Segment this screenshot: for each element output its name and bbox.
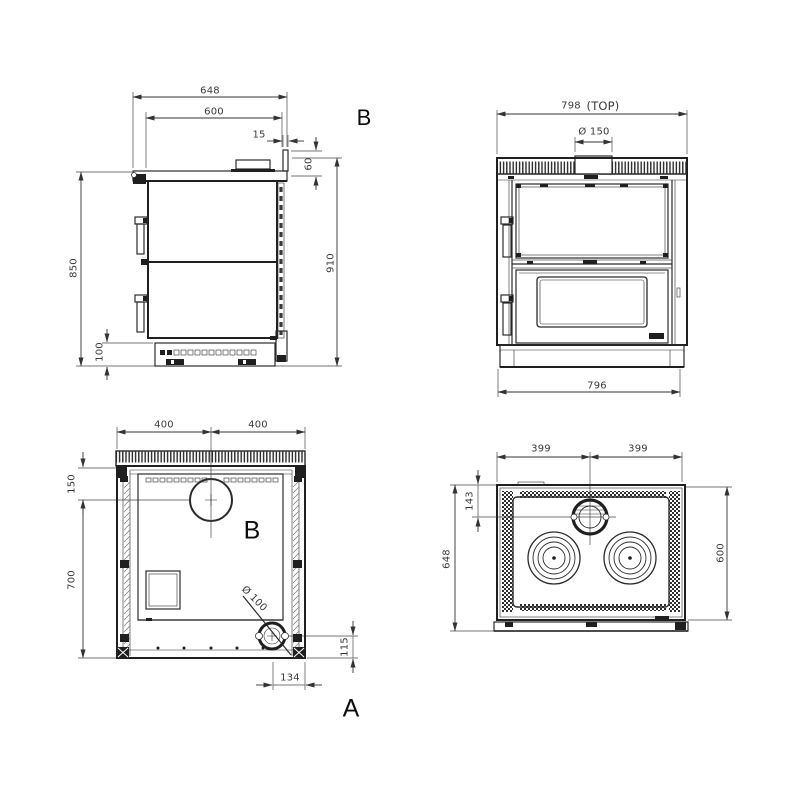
dim-top-overall-depth: 648 [442, 549, 453, 569]
dim-side-upstand-thickness: 15 [252, 130, 265, 141]
dim-front-top-width: 798 [561, 101, 581, 112]
dim-front-base-width: 796 [587, 381, 607, 392]
technical-drawing-canvas: 648 600 15 60 850 910 100 B 798 (TOP) Ø … [0, 0, 800, 800]
view-label-b-rear: B [244, 517, 261, 546]
dim-side-top-depth: 600 [204, 107, 224, 118]
dim-top-half-width-left: 399 [531, 444, 551, 455]
dim-front-flue-diameter: Ø 150 [578, 127, 609, 138]
dim-top-inner-depth: 600 [716, 543, 727, 563]
dim-rear-port-side-offset: 134 [280, 673, 300, 684]
dim-front-top-note: (TOP) [587, 99, 620, 113]
view-label-a-rear: A [343, 695, 360, 724]
dim-side-overall-height: 910 [326, 253, 337, 273]
view-label-b-side: B [357, 105, 372, 131]
dim-top-half-width-right: 399 [628, 444, 648, 455]
dim-side-body-height: 850 [69, 258, 80, 278]
dim-side-overall-depth: 648 [200, 86, 220, 97]
dim-top-flue-front-offset: 143 [465, 491, 476, 511]
dim-rear-port-height: 115 [340, 637, 351, 657]
dim-side-upstand-height: 60 [304, 157, 315, 170]
dim-rear-half-width-left: 400 [154, 420, 174, 431]
dim-rear-half-width-right: 400 [248, 420, 268, 431]
dim-side-plinth-height: 100 [95, 342, 106, 362]
dim-rear-lower-height: 700 [67, 570, 78, 590]
dim-rear-port-diameter: Ø 100 [239, 584, 269, 614]
dim-rear-flue-top-offset: 150 [67, 474, 78, 494]
dimension-text-layer: 648 600 15 60 850 910 100 B 798 (TOP) Ø … [0, 0, 800, 800]
